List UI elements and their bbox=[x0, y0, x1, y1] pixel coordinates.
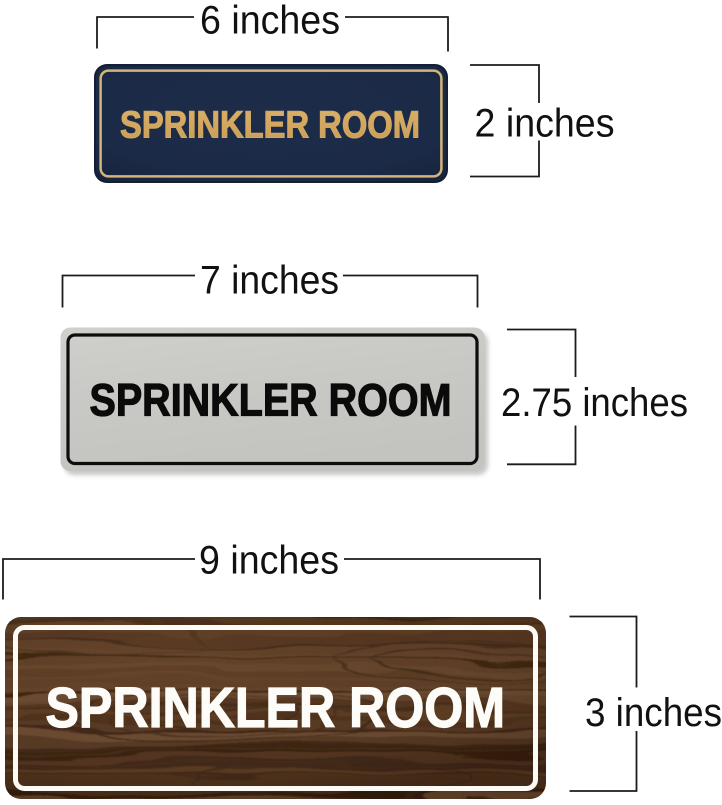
svg-text:SPRINKLER ROOM: SPRINKLER ROOM bbox=[46, 676, 506, 739]
svg-text:SPRINKLER ROOM: SPRINKLER ROOM bbox=[90, 374, 452, 425]
svg-text:6 inches: 6 inches bbox=[200, 0, 340, 43]
svg-text:7 inches: 7 inches bbox=[200, 258, 339, 302]
svg-text:2.75 inches: 2.75 inches bbox=[501, 381, 688, 425]
svg-text:SPRINKLER ROOM: SPRINKLER ROOM bbox=[120, 104, 420, 146]
svg-text:9 inches: 9 inches bbox=[199, 539, 339, 583]
svg-text:2 inches: 2 inches bbox=[475, 102, 615, 146]
svg-text:3 inches: 3 inches bbox=[585, 691, 722, 735]
